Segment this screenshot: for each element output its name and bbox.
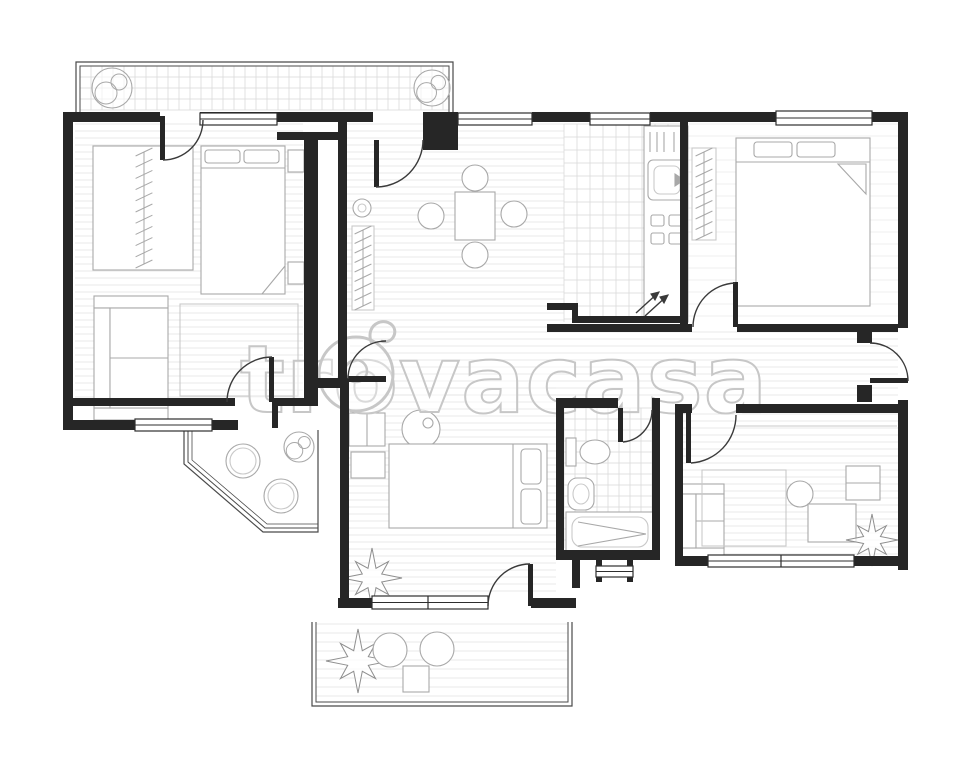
plant-balcony-north-right — [414, 70, 450, 106]
door-entrance-arc — [870, 343, 908, 381]
plant-balcony-west — [284, 432, 314, 462]
nightstand-1 — [288, 150, 304, 172]
window-living-2 — [590, 113, 650, 125]
wall-pocket-bottom — [277, 132, 347, 140]
balcony-north-floor — [80, 66, 449, 110]
stool-balcony-west-1 — [226, 444, 260, 478]
desk-chair — [787, 481, 813, 507]
floor-plan: trovacasa — [0, 0, 979, 768]
wall-kitchen-east — [680, 112, 688, 332]
wall-bath-east — [652, 398, 660, 560]
sofa2-back — [682, 494, 696, 548]
sofa1-back — [94, 308, 110, 408]
dining-table — [455, 192, 495, 240]
wall-southwest-1 — [63, 420, 135, 430]
sofa1-armrest-top — [94, 296, 168, 308]
toilet-tank — [566, 438, 576, 466]
plant-balcony-north-left — [92, 68, 132, 108]
wall-top-pier — [423, 112, 458, 150]
nightstand-2 — [288, 262, 304, 284]
desk — [808, 504, 856, 542]
window-rightroom — [708, 555, 854, 567]
chair-balcony-south-2 — [420, 632, 454, 666]
wall-entry-stub-2 — [857, 385, 872, 402]
wall-bedroom1-east — [304, 132, 318, 406]
wall-bath-north — [556, 398, 618, 408]
sofa1-armrest-bottom — [94, 408, 168, 420]
wall-bedroom1-south-jamb — [272, 398, 278, 428]
wall-bath-west — [556, 398, 564, 560]
door-rightroom-leaf — [686, 413, 691, 463]
window-bottomroom — [372, 596, 488, 609]
door-bedroom1-leaf — [269, 357, 274, 402]
shelf-bottomroom — [351, 452, 385, 478]
bed3 — [389, 444, 547, 528]
window-bedroom1-balcony — [135, 419, 212, 431]
dining-chair-east — [501, 201, 527, 227]
floor-plan-drawing: trovacasa — [0, 0, 979, 768]
door-bedroom2-arc — [693, 283, 735, 327]
wall-bedroom1-south-1 — [73, 398, 235, 406]
wall-entry-stub-1 — [857, 328, 872, 343]
wall-bath-south — [556, 550, 660, 560]
wall-bottomroom-south-1 — [338, 598, 372, 608]
wall-bottomroom-east-stub — [572, 556, 580, 588]
sofa2-armrest-top — [682, 484, 724, 494]
wall-top-3 — [532, 112, 590, 122]
bed2 — [736, 138, 870, 306]
dining-chair-north — [462, 165, 488, 191]
table-balcony-south — [403, 666, 429, 692]
wall-bottomroom-south-2 — [531, 598, 576, 608]
wall-corridor-north-2 — [737, 324, 898, 332]
dining-chair-south — [462, 242, 488, 268]
wall-rightroom-north-2 — [736, 404, 900, 413]
wall-corridor-north-1 — [547, 324, 692, 332]
wall-top-4 — [650, 112, 778, 122]
stool-balcony-west-2 — [264, 479, 298, 513]
door-bottomroom-leaf — [348, 376, 386, 382]
bidet — [568, 478, 594, 510]
stool-living — [353, 199, 371, 217]
wall-west — [63, 112, 73, 430]
door-bathroom-leaf — [618, 408, 623, 442]
door-living-balcony-leaf — [374, 140, 379, 187]
toilet-bowl — [580, 440, 610, 464]
wall-living-west — [338, 112, 347, 386]
door-bedroom1-balcony-leaf — [160, 116, 165, 160]
dining-chair-west — [418, 203, 444, 229]
wall-kitchen-step-3 — [577, 316, 687, 323]
watermark-logo-ring — [319, 337, 393, 411]
wall-east-2 — [898, 400, 908, 570]
window-bedroom1-north — [200, 113, 277, 125]
wall-east-1 — [898, 112, 908, 328]
chair-balcony-south-1 — [373, 633, 407, 667]
window-bedroom2-north — [776, 111, 872, 125]
wall-top-1 — [63, 112, 160, 122]
door-entrance-leaf — [870, 378, 908, 383]
door-bedroom2-leaf — [733, 282, 738, 327]
window-bathroom — [596, 566, 633, 577]
balcony-north-rail-outer — [76, 62, 453, 112]
wall-rightroom-west — [675, 404, 683, 566]
wall-southwest-2 — [212, 420, 238, 430]
wall-bottomroom-west — [340, 386, 349, 608]
window-living-1 — [458, 113, 532, 125]
door-balcony-south-leaf — [528, 564, 533, 606]
